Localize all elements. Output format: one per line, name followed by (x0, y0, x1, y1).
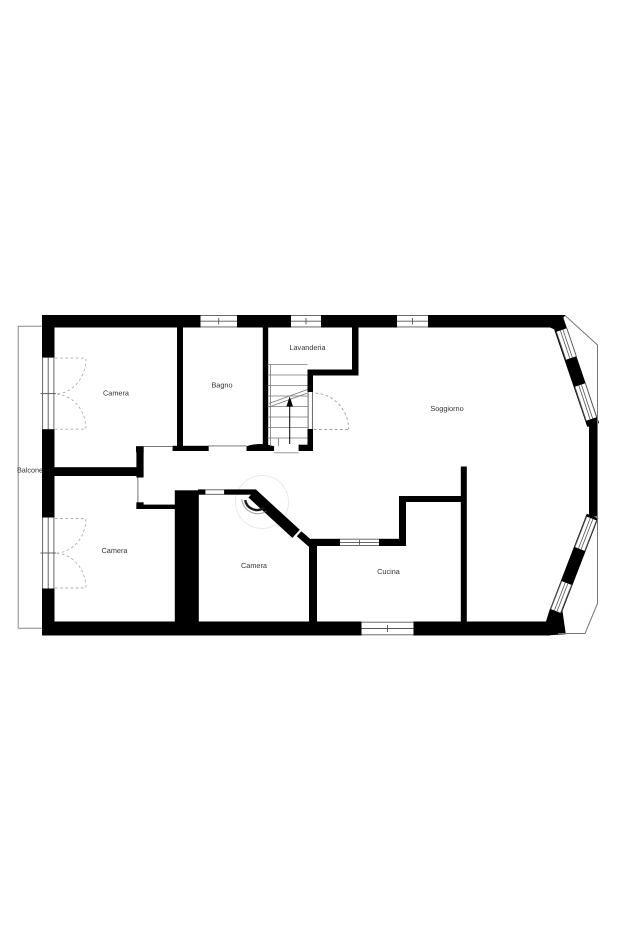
svg-text:Camera: Camera (102, 546, 129, 555)
svg-text:Camera: Camera (103, 389, 130, 398)
svg-text:Bagno: Bagno (211, 381, 232, 390)
svg-text:Soggiorno: Soggiorno (430, 404, 463, 413)
svg-text:Cucina: Cucina (377, 567, 401, 576)
svg-text:Camera: Camera (241, 561, 268, 570)
svg-text:Balcone: Balcone (17, 466, 43, 475)
svg-text:Lavanderia: Lavanderia (289, 343, 326, 352)
